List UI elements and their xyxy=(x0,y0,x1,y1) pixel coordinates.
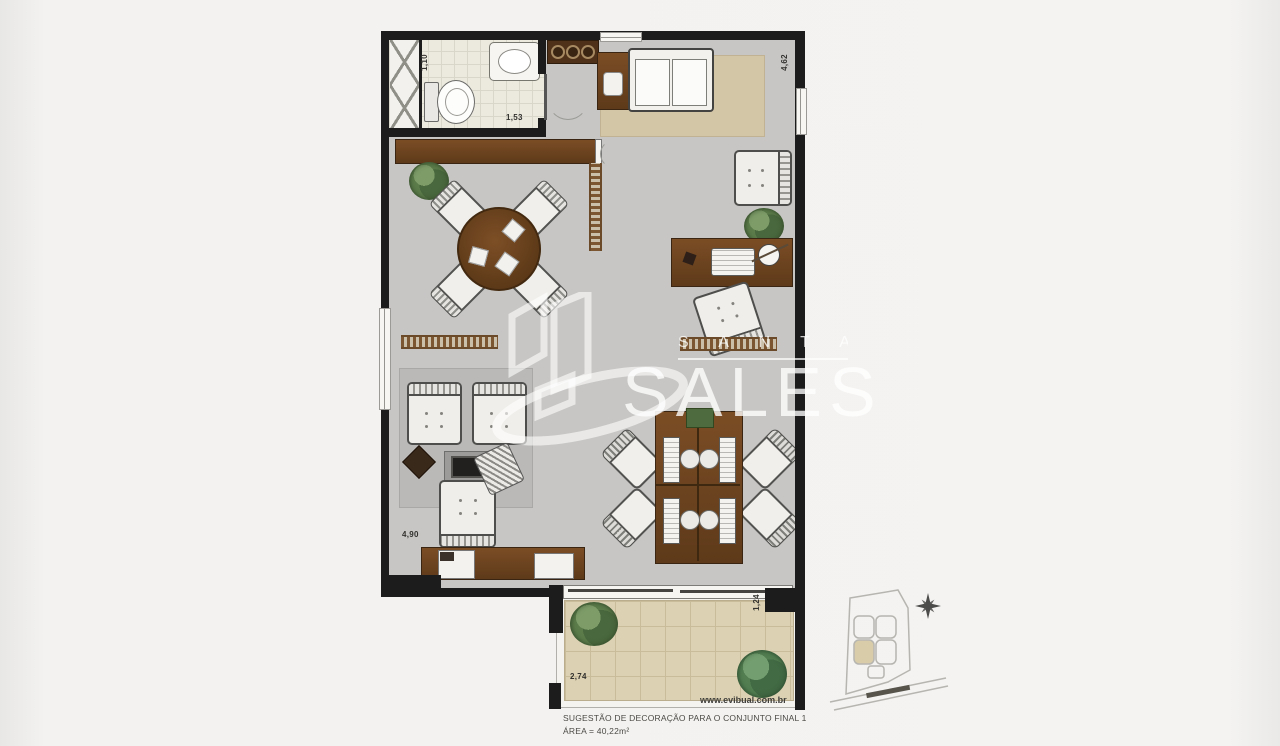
caption-title: SUGESTÃO DE DECORAÇÃO PARA O CONJUNTO FI… xyxy=(563,713,807,723)
workstation-keyboard xyxy=(663,498,680,544)
bathroom-door-arc xyxy=(547,76,589,120)
dim-terrace-depth: 1,24 xyxy=(752,594,761,611)
printer-detail xyxy=(440,552,454,561)
bathroom-right-wall-bottom xyxy=(538,118,546,137)
terrace-wall-left xyxy=(549,585,563,633)
bathroom-bottom-wall xyxy=(389,128,542,137)
brand-name-main: SALES xyxy=(622,352,883,432)
window-top xyxy=(600,32,642,42)
window-right xyxy=(796,88,807,135)
accent-armchair xyxy=(734,150,792,206)
wall-top xyxy=(381,31,805,40)
cabinet-door-arc xyxy=(600,140,628,168)
floorplan-canvas: 1,10 1,53 4,62 4,90 2,74 1,24 S A N T A … xyxy=(0,0,1280,746)
sofa-cushion xyxy=(672,59,707,106)
dining-table xyxy=(457,207,541,291)
lounge-armchair xyxy=(407,382,462,445)
website-text: www.evibual.com.br xyxy=(700,695,787,705)
terrace-wall-left-bottom xyxy=(549,683,561,709)
dim-room-width: 4,90 xyxy=(402,530,419,539)
wall-bottom-step xyxy=(381,575,441,597)
seat-icon xyxy=(699,449,719,469)
kitchenette-counter xyxy=(547,40,599,64)
partition-vertical xyxy=(589,163,602,251)
sink-basin-icon xyxy=(498,49,531,74)
caption-area: ÁREA = 40,22m² xyxy=(563,726,629,736)
dim-terrace-width: 2,74 xyxy=(570,672,587,681)
terrace-wall-right xyxy=(795,597,805,710)
keyboard-icon xyxy=(711,248,755,276)
burner-icon xyxy=(551,45,565,59)
workstation-keyboard xyxy=(719,498,736,544)
burner-icon xyxy=(566,45,580,59)
terrace-plant-icon xyxy=(737,650,787,698)
sliding-door-track xyxy=(568,589,673,592)
compass-icon xyxy=(915,593,941,619)
window-left xyxy=(379,308,391,410)
sofa-cushion xyxy=(635,59,670,106)
terrace-plant-icon xyxy=(570,602,618,646)
site-keyplan xyxy=(828,578,968,718)
dim-bathroom-length: 1,53 xyxy=(506,113,523,122)
burner-icon xyxy=(581,45,595,59)
terrace-notch xyxy=(765,588,805,612)
sofa xyxy=(628,48,714,112)
workstation-keyboard xyxy=(719,437,736,483)
credenza-tray xyxy=(534,553,574,579)
dim-bathroom-width: 1,10 xyxy=(420,54,429,71)
dim-living-depth: 4,62 xyxy=(780,54,789,71)
seat-icon xyxy=(680,510,700,530)
bathroom-right-wall-top xyxy=(538,38,546,74)
wall-cabinet xyxy=(395,139,597,164)
shaft xyxy=(390,39,422,131)
seat-icon xyxy=(699,510,719,530)
toilet-bowl-inner xyxy=(445,88,469,116)
side-table-decor xyxy=(603,72,623,96)
work-table-divider-h xyxy=(656,484,740,486)
